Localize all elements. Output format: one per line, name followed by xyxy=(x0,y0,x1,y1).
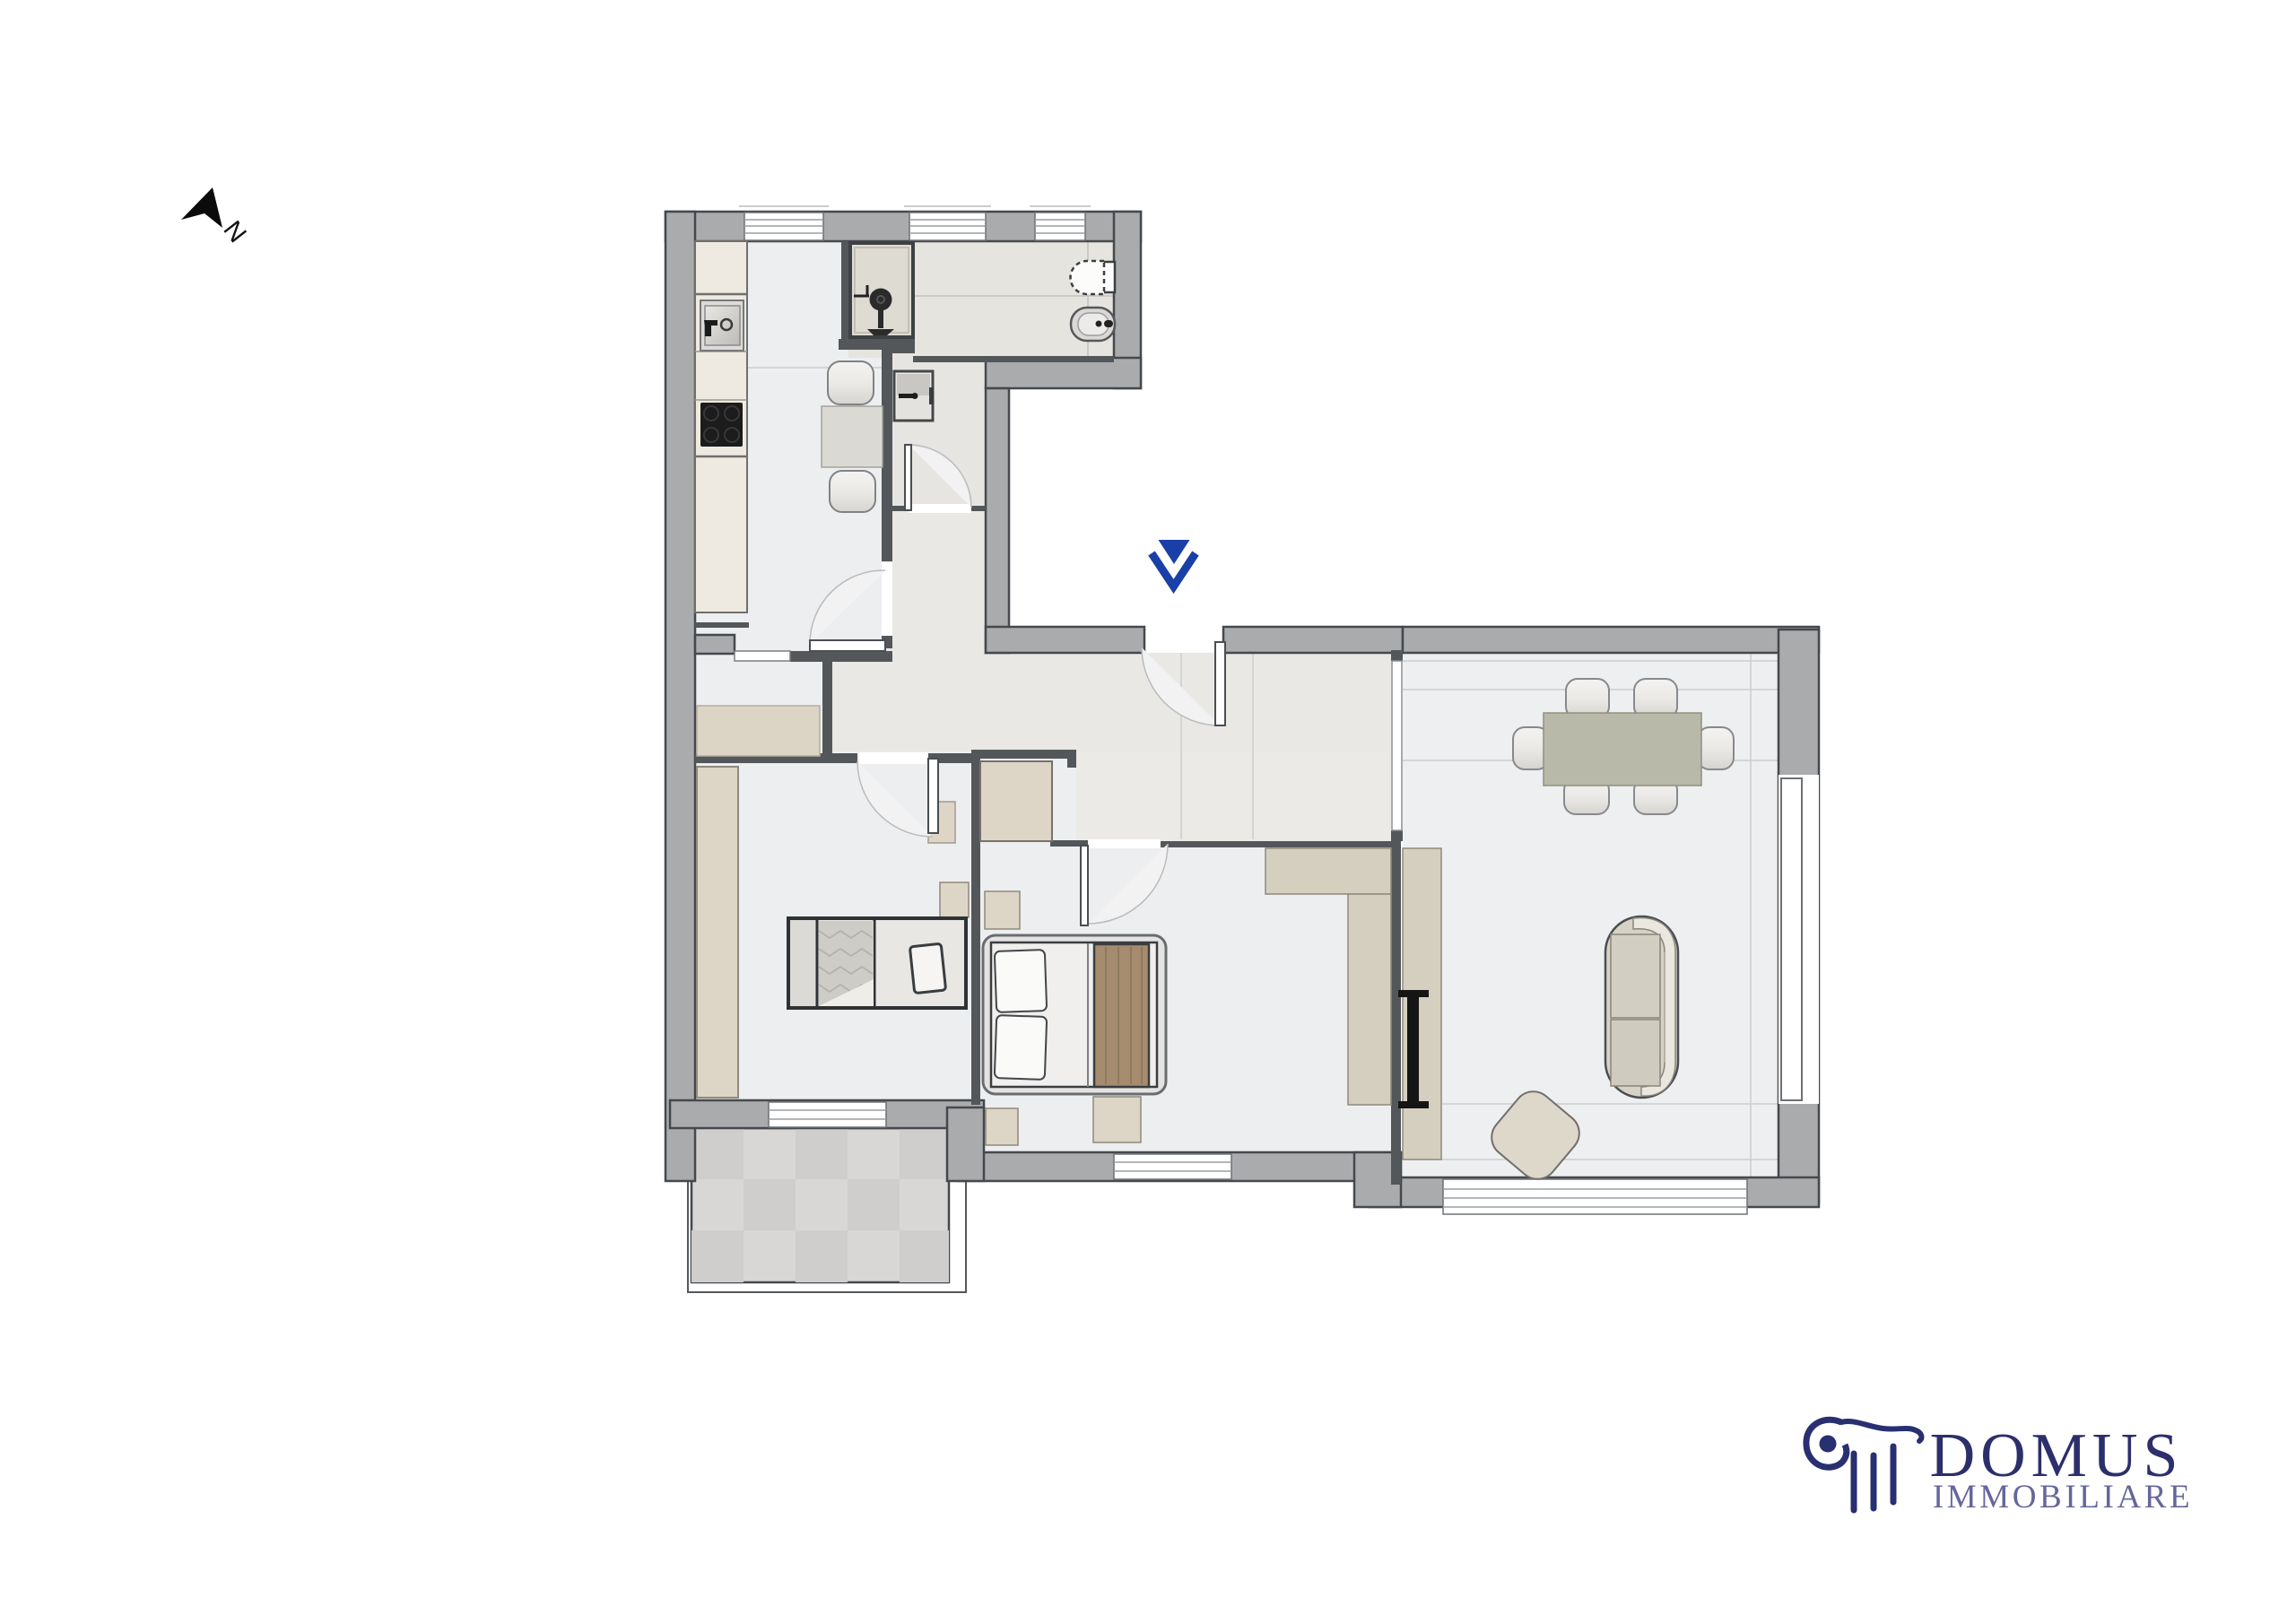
svg-text:IMMOBILIARE: IMMOBILIARE xyxy=(1933,1479,2193,1515)
